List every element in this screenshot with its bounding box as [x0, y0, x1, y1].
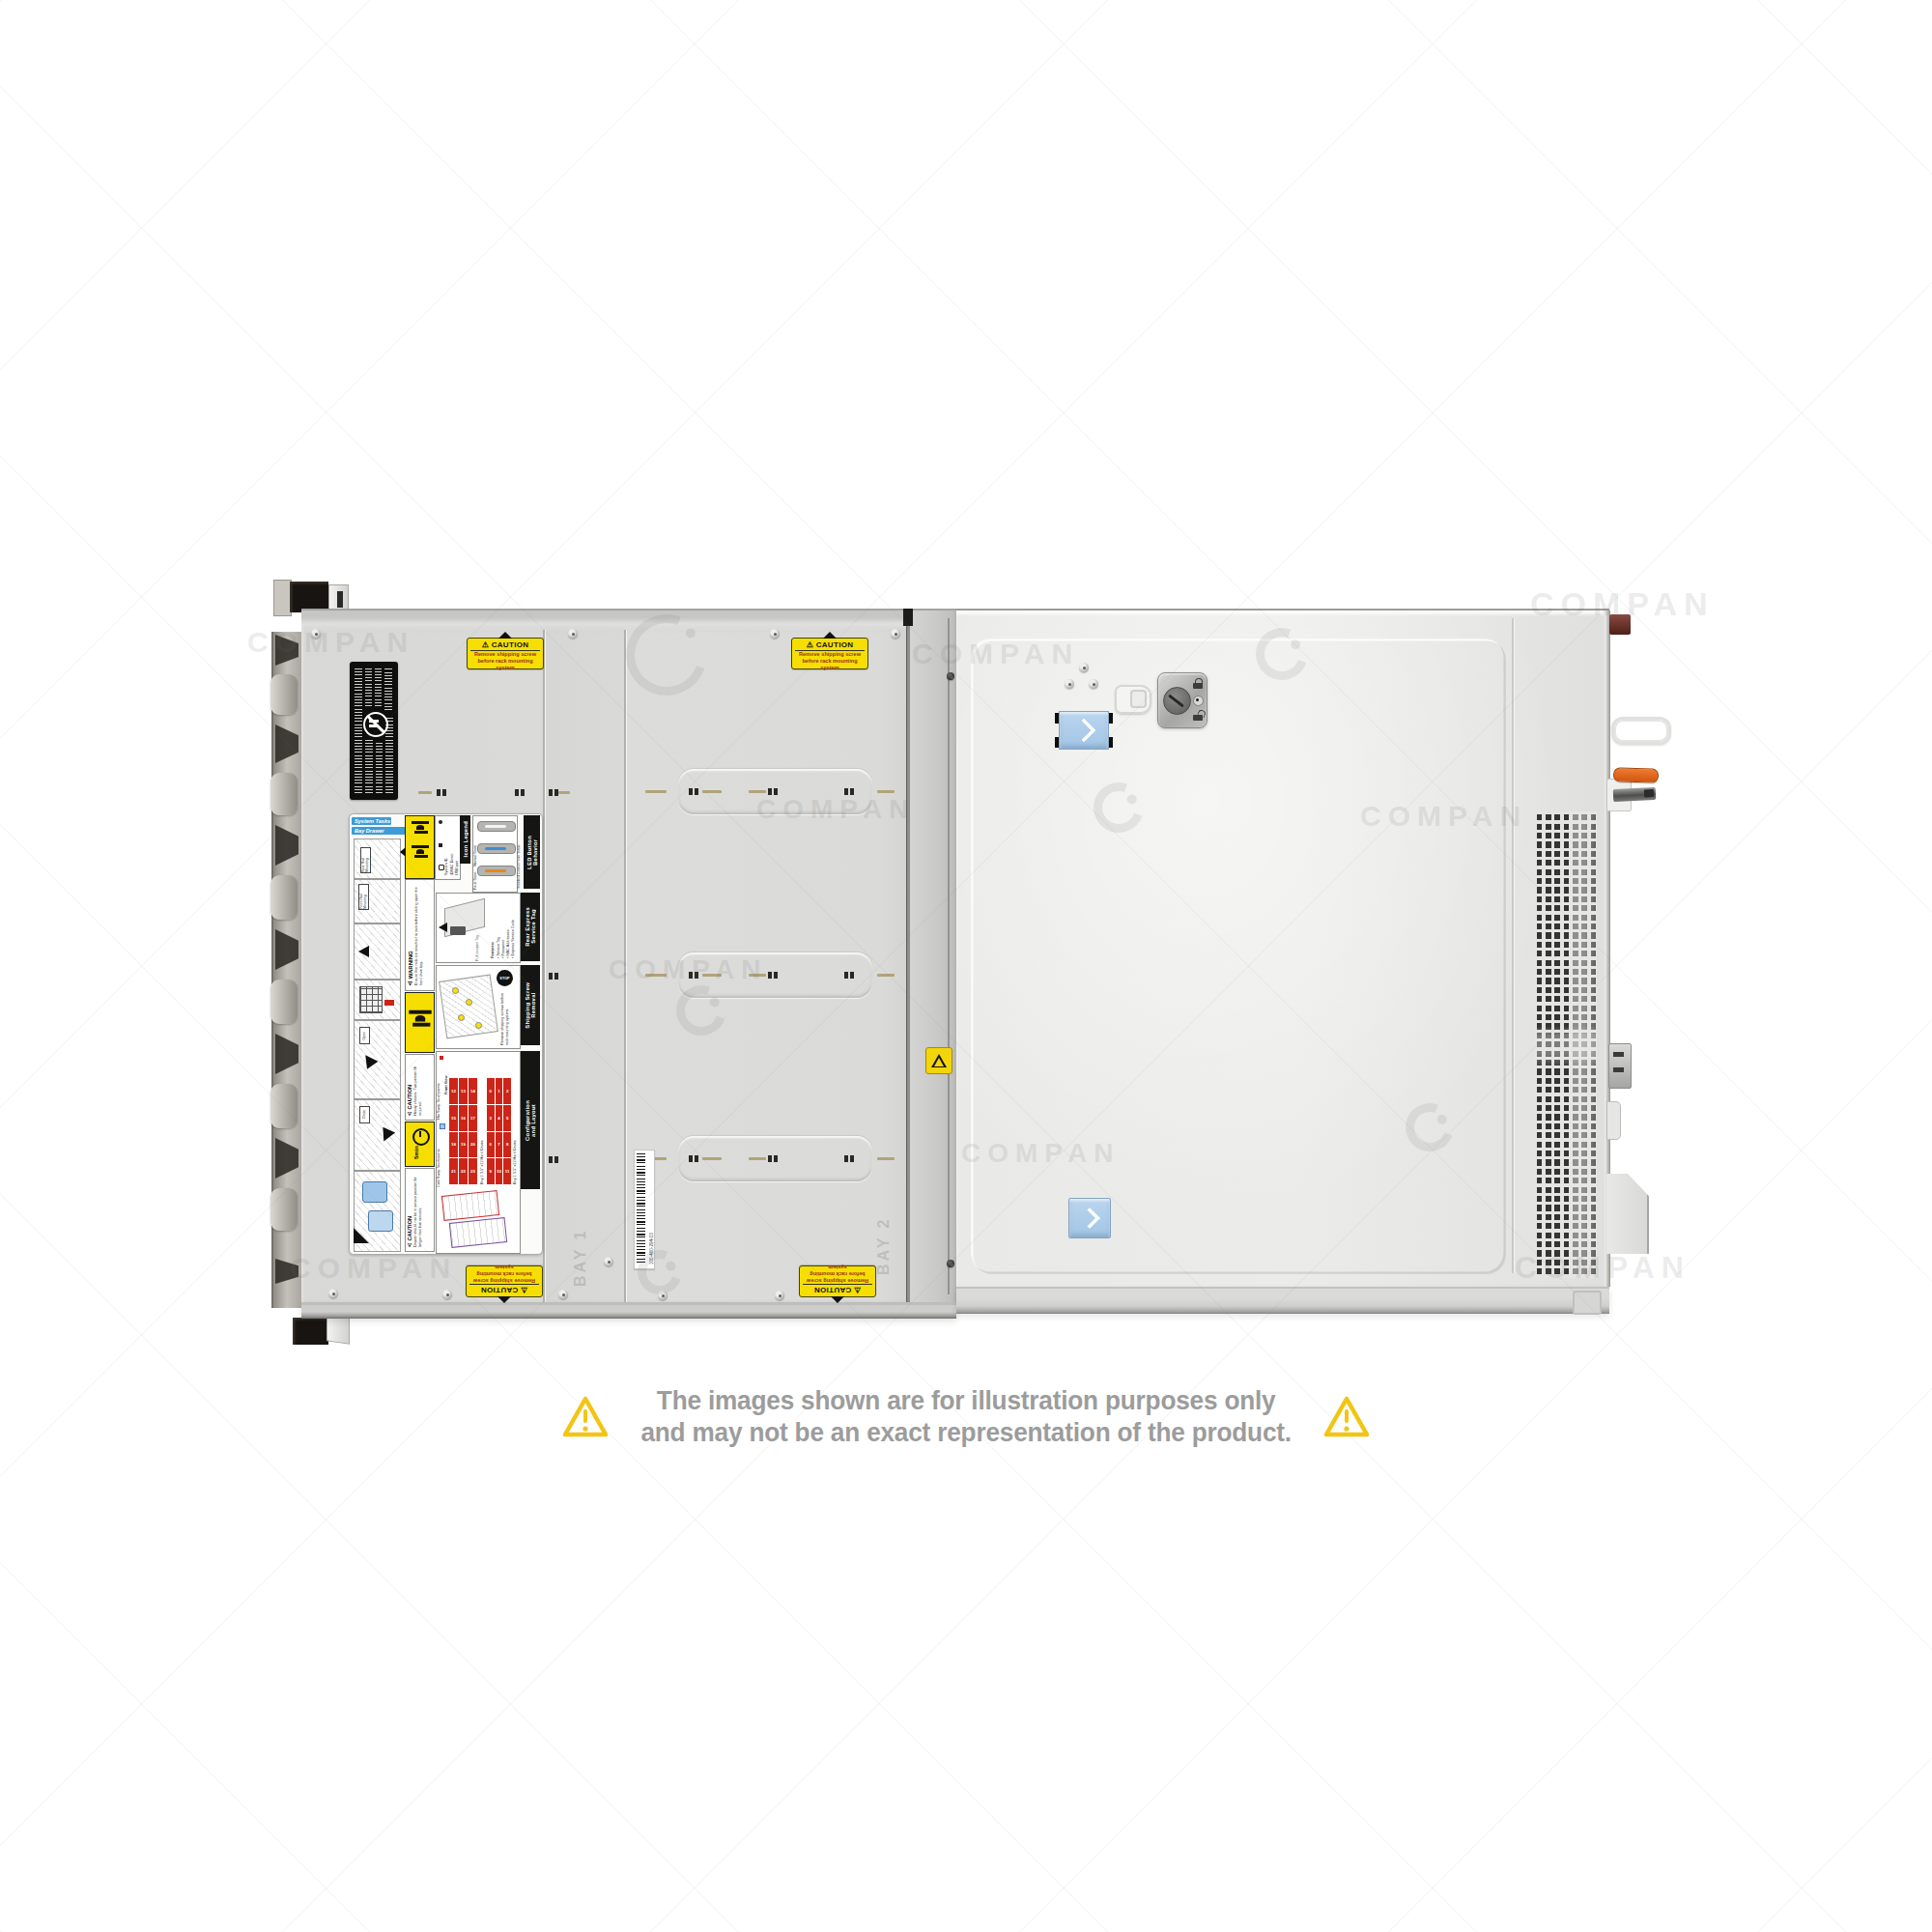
- bay1-caption: Bay 1 3.5" x12 Hard Drives: [513, 1078, 518, 1184]
- keylock-screw: [1163, 687, 1191, 715]
- keypad-sketch: [354, 980, 401, 1020]
- barcode-label: 100-400-294-03: [634, 1150, 655, 1269]
- icon-legend-item: USB port: [455, 819, 460, 875]
- caution-line2: before rack mounting system: [470, 658, 540, 671]
- caution-drawer-text: Drawer should not be in service position…: [413, 1172, 422, 1247]
- screw: [658, 1291, 668, 1300]
- front-bezel-fins: [271, 632, 303, 1308]
- warning-triangle-icon: [1322, 1395, 1371, 1439]
- pull-tag-note: Pull to open Tag: [475, 932, 480, 961]
- icon-legend-item: System ID: [444, 819, 449, 875]
- regulatory-label: [350, 662, 398, 800]
- lock-indicator-dot: [1193, 696, 1204, 706]
- hazard-triangle-icon: [931, 1054, 947, 1067]
- edge-bracket: [1608, 1043, 1632, 1089]
- screw: [568, 629, 578, 639]
- close-tag: Close: [363, 1110, 367, 1119]
- stop-icon: STOP: [497, 970, 513, 986]
- config-box: Hot Swap Touchpoints Cold Swap Touchpoin…: [436, 1051, 521, 1254]
- spring-clip: [1613, 787, 1657, 802]
- caution-line1: Remove shipping screw: [470, 651, 540, 658]
- panel-mark: [877, 974, 895, 977]
- chassis-top-rim: [301, 609, 956, 632]
- panel-mark: [877, 790, 895, 793]
- warning-title: ⚠ WARNING: [407, 883, 413, 987]
- screw: [311, 629, 321, 639]
- drive-table-bay1: 012 345 678 91011: [487, 1078, 511, 1184]
- config-header: Configuration and Layout: [521, 1051, 540, 1189]
- caution-label-bottom-left: ⚠ CAUTION Remove shipping screw before r…: [466, 1265, 543, 1297]
- lid-bottom-tab: [1573, 1291, 1602, 1315]
- keylock-plate: [1157, 672, 1207, 728]
- edge-tab: [1606, 1101, 1621, 1140]
- features-title: Features:: [491, 896, 496, 958]
- caution-line2: before rack mounting system: [803, 1264, 872, 1277]
- screw: [604, 1257, 613, 1266]
- led-fault-label: Fault State: [473, 861, 478, 890]
- label-pointer: [823, 632, 837, 639]
- caution-title: ⚠ CAUTION: [467, 1286, 542, 1294]
- rack-ear-bottom: [293, 1318, 328, 1345]
- edge-notched-tab: [1606, 1174, 1649, 1254]
- screw: [1065, 679, 1074, 689]
- screw: [947, 1260, 954, 1267]
- screw: [1089, 679, 1098, 689]
- slide-arrow-button-top: [1059, 711, 1109, 750]
- led-behavior-header: LED Button Behavior: [524, 815, 540, 889]
- label-pointer: [498, 632, 512, 639]
- slide-arrow-button-bottom: [1068, 1198, 1111, 1238]
- clock-icon: [412, 1128, 430, 1146]
- hinge-crease: [948, 618, 950, 1294]
- lid-release-latch: [1115, 685, 1151, 714]
- locked-icon: [1193, 678, 1203, 689]
- led-slot-white: [485, 825, 506, 829]
- caution-line1: Remove shipping screw: [469, 1277, 539, 1284]
- caution-drawer-strip: ⚠ CAUTION Drawer should not be in servic…: [405, 1168, 435, 1252]
- cold-swap-legend: Cold Swap Touchpoints: [437, 1129, 441, 1187]
- front-view-label: Front View: [444, 1056, 449, 1094]
- idrac-icon: [439, 843, 442, 847]
- rail-mount-sketch-2: Front Rail Mounting: [354, 879, 401, 923]
- service-instruction-label: System Tasks Bay Drawer Operation Rear R…: [349, 813, 543, 1255]
- lid-bevel-line: [1512, 618, 1514, 1273]
- shipping-box: STOP Remove shipping screws before rack …: [436, 965, 521, 1049]
- shipping-header: Shipping Screw Removal: [521, 965, 540, 1045]
- screw: [947, 672, 954, 680]
- shipping-note: Remove shipping screws before rack mount…: [500, 989, 509, 1045]
- rear-rail-mounting-tag: Rear Rail Mounting: [362, 848, 370, 872]
- barcode-bars: [637, 1153, 645, 1264]
- product-photo-canvas: ⚠ CAUTION Remove shipping screw before r…: [0, 0, 1932, 1932]
- bay-drawer-operation-header: Bay Drawer Operation: [352, 827, 408, 835]
- panel-mark: [645, 790, 667, 793]
- panel-mark: [418, 791, 432, 794]
- tray-sketch: [354, 923, 401, 980]
- caution-label-top-middle: ⚠ CAUTION Remove shipping screw before r…: [791, 638, 868, 669]
- rear-corner-block: [1609, 614, 1631, 635]
- panel-mark: [877, 1157, 895, 1160]
- screw: [1079, 663, 1089, 672]
- chevron-right-icon: [1079, 1207, 1101, 1230]
- caution-label-top-left: ⚠ CAUTION Remove shipping screw before r…: [467, 638, 544, 669]
- caution-title: ⚠ CAUTION: [800, 1286, 875, 1294]
- caution-heavy-text: Heavy chassis. Two person lift required.: [413, 1058, 422, 1116]
- blue-part-callout: [368, 1210, 393, 1232]
- drawer-open-sketch: Open: [354, 1020, 401, 1099]
- tray-diagram-purple: [449, 1217, 507, 1248]
- bezel-sketch: [354, 1171, 401, 1252]
- caution-title: ⚠ CAUTION: [407, 1172, 412, 1248]
- bay1-marking: BAY 1: [572, 1198, 589, 1287]
- warning-triangle-icon: [561, 1395, 610, 1439]
- caution-label-bottom-middle: ⚠ CAUTION Remove shipping screw before r…: [799, 1265, 876, 1297]
- caution-heavy-strip: ⚠ CAUTION Heavy chassis. Two person lift…: [405, 1054, 435, 1121]
- blue-part-callout: [362, 1181, 387, 1203]
- bay2-marking: BAY 2: [875, 1186, 893, 1275]
- caution-title: ⚠ CAUTION: [407, 1058, 412, 1117]
- lid-vent-grid: [1535, 811, 1597, 1278]
- caution-line1: Remove shipping screw: [795, 651, 865, 658]
- lid-bottom-rim: [956, 1287, 1609, 1314]
- pull-ring-handle: [1611, 717, 1671, 745]
- panel-seam-2: [624, 630, 626, 1302]
- led-slot-blue: [485, 847, 506, 851]
- caution-title: ⚠ CAUTION: [468, 640, 543, 649]
- drive-table-bay2: 121314 151617 181920 212223: [449, 1078, 477, 1184]
- warning-text: Ensure that rails are attached to rack b…: [414, 883, 423, 985]
- five-minute-label: 5min: [405, 1122, 435, 1167]
- release-lever: [1613, 767, 1659, 783]
- five-min-text: 5min: [413, 1146, 419, 1159]
- warning-strip: ⚠ WARNING Ensure that rails are attached…: [405, 879, 435, 991]
- disclaimer-line2: and may not be an exact representation o…: [640, 1417, 1291, 1449]
- screw: [328, 1289, 338, 1298]
- front-rail-mounting-tag: Front Rail Mounting: [360, 885, 368, 909]
- keypad-red-button: [384, 1000, 394, 1006]
- bracket-slot: [337, 591, 343, 608]
- caution-line1: Remove shipping screw: [803, 1277, 872, 1284]
- label-pointer: [831, 1296, 844, 1303]
- screw: [770, 629, 780, 639]
- caution-title: ⚠ CAUTION: [792, 640, 867, 649]
- stamped-vent-2: [678, 952, 872, 998]
- icon-legend-item: iDRAC Direct: [450, 819, 455, 875]
- hot-swap-legend-square: [440, 1056, 443, 1060]
- led-slot-orange: [485, 869, 506, 873]
- stamped-vent-3: [678, 1136, 872, 1181]
- bay2-caption: Bay 2 3.5" x12 Hard Drives: [480, 1078, 485, 1184]
- open-tag: Open: [363, 1032, 367, 1040]
- hazard-triangle-sticker: [925, 1047, 952, 1074]
- system-id-icon: [439, 820, 442, 824]
- screw: [558, 1290, 568, 1299]
- led-behavior-box: Normal State Fault State: [472, 815, 518, 893]
- led-subtitle: Standard Control Panel Status: [517, 815, 523, 889]
- system-tasks-header: System Tasks: [352, 817, 391, 825]
- pinch-hazard-label: [405, 815, 435, 879]
- disclaimer-row: The images shown are for illustration pu…: [0, 1385, 1932, 1449]
- usb-icon: [439, 865, 444, 870]
- rear-tag-header: Rear Express Service Tag: [521, 893, 540, 961]
- tray-diagram-red: [441, 1190, 499, 1221]
- chassis-drawing: [439, 975, 498, 1039]
- icon-legend-header: Icon Legend: [460, 815, 470, 864]
- screw: [891, 629, 900, 639]
- unlocked-icon: [1193, 710, 1203, 721]
- rear-tag-box: Features: • Service Tag • Password • MAC…: [436, 893, 521, 963]
- pinch-hazard-label-2: [405, 992, 435, 1053]
- icon-legend-box: System ID iDRAC Direct USB port: [435, 815, 461, 880]
- chassis-bottom-rim: [301, 1302, 956, 1319]
- screw: [775, 1291, 784, 1300]
- rail-mount-sketch-1: Rear Rail Mounting: [354, 838, 401, 879]
- lid-embossed-panel: [972, 639, 1505, 1273]
- hinge-notch: [903, 609, 913, 626]
- caution-line2: before rack mounting system: [469, 1264, 539, 1277]
- chevron-right-icon: [1071, 718, 1095, 742]
- caution-line2: before rack mounting system: [795, 658, 865, 671]
- screw: [442, 1290, 452, 1299]
- drawer-close-sketch: Close: [354, 1099, 401, 1171]
- hot-swap-legend: Hot Swap Touchpoints: [437, 1062, 441, 1120]
- stamped-vent-1: [678, 769, 872, 814]
- panel-mark: [645, 974, 667, 977]
- barcode-text: 100-400-294-03: [649, 1154, 654, 1264]
- panel-seam-1: [543, 630, 545, 1302]
- disclaimer-line1: The images shown are for illustration pu…: [640, 1385, 1291, 1417]
- label-pointer: [497, 1296, 511, 1303]
